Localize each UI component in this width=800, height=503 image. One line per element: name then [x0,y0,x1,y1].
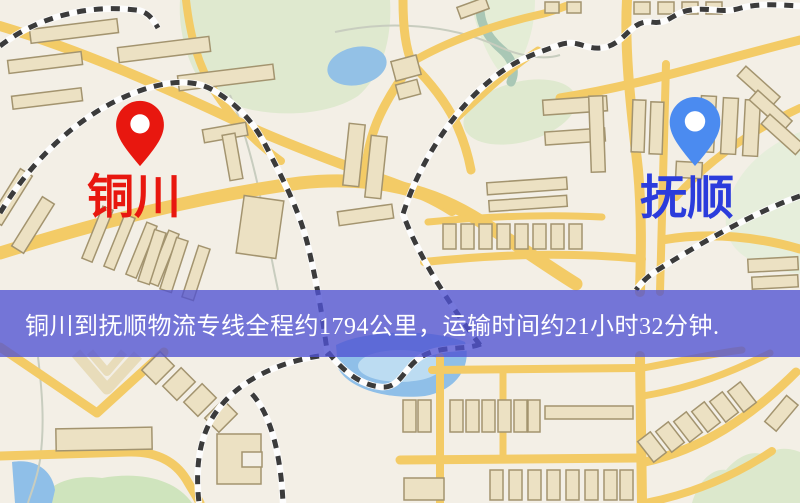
route-info-text: 铜川到抚顺物流专线全程约1794公里，运输时间约21小时32分钟. [25,306,720,341]
map-canvas [0,0,800,503]
logistics-route-map: 铜川 抚顺 铜川到抚顺物流专线全程约1794公里，运输时间约21小时32分钟. [0,0,800,503]
route-info-banner: 铜川到抚顺物流专线全程约1794公里，运输时间约21小时32分钟. [0,290,800,357]
